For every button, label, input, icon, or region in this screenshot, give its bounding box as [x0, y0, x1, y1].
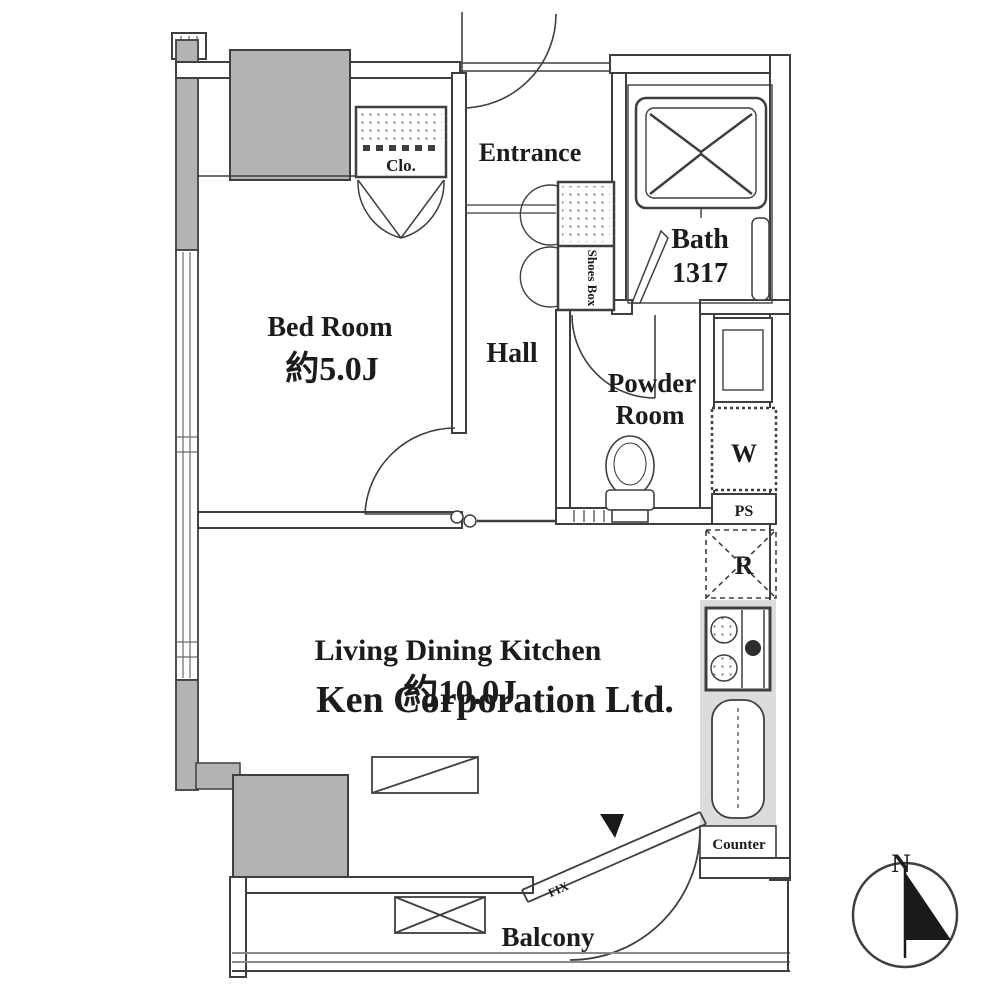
- powder-room-label-line1: Powder: [608, 368, 696, 398]
- refrigerator-label: R: [735, 551, 754, 580]
- wall-bedroom-hall: [452, 73, 466, 433]
- ldk-size-label: 約10.0J: [403, 673, 517, 712]
- fixed-window-label: FIX: [546, 879, 571, 900]
- compass: N: [853, 849, 957, 967]
- kitchen-sink: [712, 700, 764, 818]
- wall-top-bath: [610, 55, 790, 73]
- washer-label: W: [731, 439, 757, 468]
- closet-doors: [358, 180, 444, 238]
- closet-label: Clo.: [386, 156, 416, 175]
- shoes-box-doors: [520, 185, 558, 307]
- bath-label: Bath: [671, 224, 729, 255]
- bath-folding-door: [632, 231, 668, 303]
- toilet: [606, 436, 654, 522]
- entry-direction-marker: [600, 814, 624, 838]
- powder-room-label-line2: Room: [616, 400, 685, 430]
- bedroom-label: Bed Room: [267, 312, 392, 343]
- stove: [706, 608, 770, 690]
- wall-left-window-band: [176, 250, 198, 680]
- entrance-step: [466, 205, 556, 213]
- wall-left-gray-bottom: [176, 680, 198, 790]
- ldk-label: Living Dining Kitchen: [315, 634, 602, 667]
- entrance-door: [460, 12, 610, 108]
- hall-ldk-door: [464, 515, 556, 527]
- pipe-space: PS: [712, 494, 776, 524]
- washbasin: [714, 318, 772, 402]
- entrance-label: Entrance: [479, 138, 582, 167]
- dining-table: [372, 757, 478, 793]
- shoes-box-label: Shoes Box: [585, 250, 600, 307]
- bath-tub: [636, 98, 766, 218]
- wall-ldk-bottom: [233, 877, 533, 893]
- wall-powder-west: [556, 310, 570, 522]
- wall-bottom-right: [700, 858, 790, 878]
- bath-ledge: [752, 218, 769, 300]
- bedroom-size-label: 約5.0J: [285, 350, 379, 388]
- counter: Counter: [700, 826, 776, 860]
- wall-bath-bottom-right: [700, 300, 790, 314]
- floor-plan-drawing: Ken Corporation Ltd.: [0, 0, 1000, 1000]
- pipe-space-label: PS: [735, 503, 754, 520]
- bath-size-label: 1317: [672, 258, 728, 289]
- counter-label: Counter: [712, 837, 766, 853]
- balcony-label: Balcony: [501, 922, 595, 952]
- bedroom-door: [365, 428, 463, 523]
- hall-label: Hall: [486, 338, 538, 369]
- pillar-top-left: [230, 50, 350, 180]
- pillar-bottom-left: [233, 775, 348, 887]
- compass-north-label: N: [892, 849, 911, 878]
- washer-space: W: [712, 408, 776, 490]
- balcony-hatch: [395, 897, 485, 933]
- floor-plan-page: Ken Corporation Ltd.: [0, 0, 1000, 1000]
